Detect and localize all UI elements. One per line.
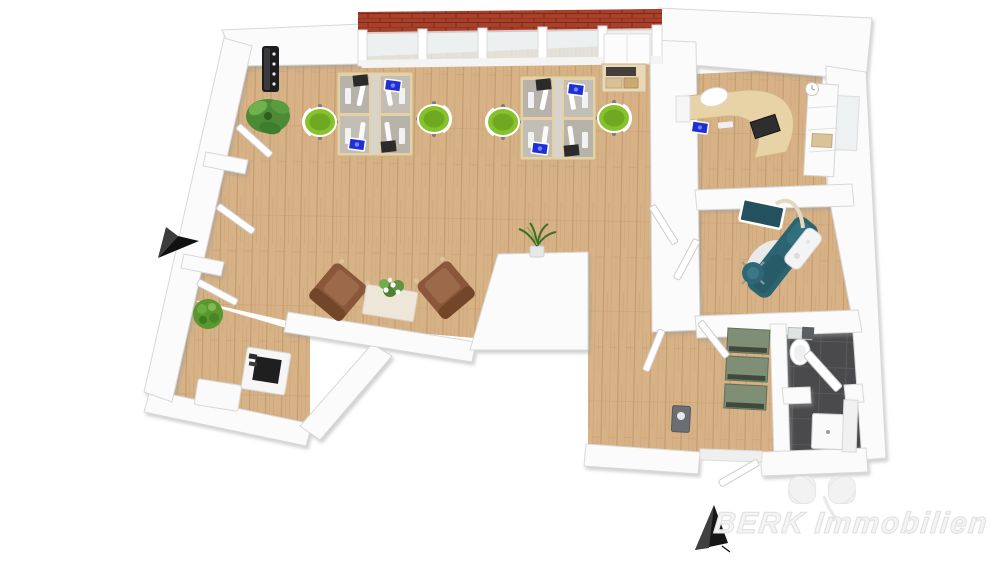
door-entrance <box>718 459 760 487</box>
storage-cabinet <box>604 34 650 64</box>
wall-bathroom-divider <box>782 387 811 404</box>
stool-teal <box>742 262 764 284</box>
locker-bank-green <box>724 328 770 410</box>
printer-copier <box>241 347 291 395</box>
coat-rack <box>262 46 279 92</box>
desk-pod-2 <box>520 76 596 160</box>
floor-plan-canvas: BERK Immobilien <box>0 0 1000 562</box>
entrance-threshold <box>700 449 762 462</box>
wall-office-divider <box>650 40 700 332</box>
brand-watermark: BERK Immobilien <box>712 507 990 541</box>
wall-sink <box>671 406 690 433</box>
desk-pod-1 <box>337 72 413 156</box>
shelf-with-boxes <box>602 64 646 92</box>
private-office-laptop <box>691 121 708 134</box>
wall-shelf <box>804 83 839 176</box>
floor-plan-scene <box>0 0 1000 562</box>
round-plant <box>193 299 223 329</box>
wall-step <box>300 344 392 440</box>
wall-clock <box>806 83 819 96</box>
